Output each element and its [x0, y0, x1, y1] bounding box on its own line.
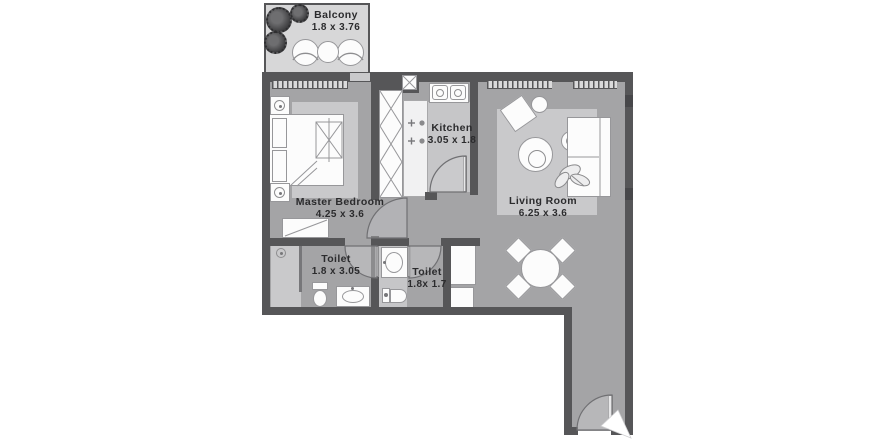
room-dims: 6.25 x 3.6 [495, 208, 591, 221]
room-dims: 1.8x 1.7 [398, 279, 456, 292]
bed-throw-pattern [290, 118, 342, 186]
room-dims: 1.8 x 3.05 [301, 266, 371, 279]
door-swing-icon [430, 156, 466, 192]
room-name: Balcony [293, 9, 379, 22]
room-dims: 3.05 x 1.8 [419, 135, 485, 148]
room-dims: 1.8 x 3.76 [293, 22, 379, 35]
room-label-toilet-1: Toilet 1.8 x 3.05 [301, 253, 371, 279]
room-name: Master Bedroom [288, 196, 392, 209]
room-name: Kitchen [419, 122, 485, 135]
room-label-toilet-2: Toilet 1.8x 1.7 [398, 266, 456, 292]
room-label-kitchen: Kitchen 3.05 x 1.8 [419, 122, 485, 148]
wardrobe-x-pattern [380, 76, 416, 197]
plan-linework [0, 0, 890, 440]
plant-icon [552, 162, 591, 190]
room-dims: 4.25 x 3.6 [288, 209, 392, 222]
room-label-master-bedroom: Master Bedroom 4.25 x 3.6 [288, 196, 392, 222]
balcony-chair-backs [293, 53, 363, 60]
room-label-living-room: Living Room 6.25 x 3.6 [495, 195, 591, 221]
room-name: Toilet [301, 253, 371, 266]
room-name: Living Room [495, 195, 591, 208]
dresser-line [285, 220, 327, 236]
room-name: Toilet [398, 266, 456, 279]
room-label-balcony: Balcony 1.8 x 3.76 [293, 9, 379, 35]
floor-plan: Balcony 1.8 x 3.76 Master Bedroom 4.25 x… [0, 0, 890, 440]
